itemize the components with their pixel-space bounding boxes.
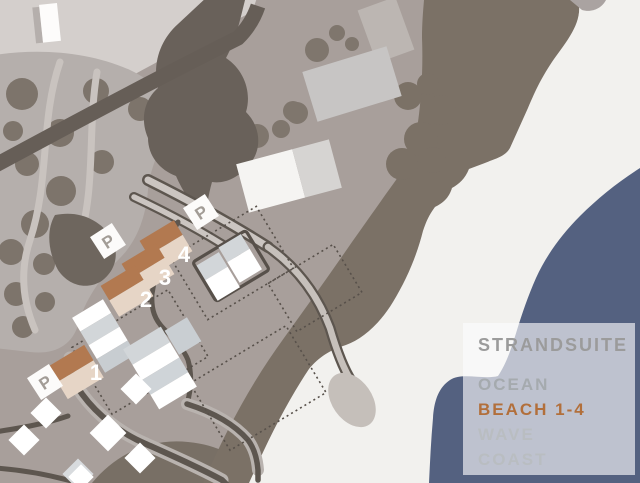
tree-circle bbox=[272, 120, 290, 138]
tree-circle bbox=[46, 176, 76, 206]
legend-item-wave: WAVE bbox=[478, 422, 635, 447]
tree-circle bbox=[417, 73, 439, 95]
tree-circle bbox=[35, 292, 55, 312]
legend-panel: STRANDSUITE OCEAN BEACH 1-4 WAVE COAST bbox=[463, 323, 635, 475]
top-left-building bbox=[32, 3, 61, 43]
tree-circle bbox=[305, 38, 329, 62]
unit-number-2: 2 bbox=[140, 287, 152, 312]
tree-circle bbox=[386, 148, 418, 180]
legend-title: STRANDSUITE bbox=[478, 335, 635, 356]
unit-number-1: 1 bbox=[90, 360, 102, 385]
tree-circle bbox=[33, 253, 55, 275]
legend-item-ocean: OCEAN bbox=[478, 372, 635, 397]
tree-circle bbox=[3, 121, 23, 141]
legend-item-beach: BEACH 1-4 bbox=[478, 397, 635, 422]
unit-number-4: 4 bbox=[178, 242, 191, 267]
tree-circle bbox=[420, 147, 446, 173]
tree-circle bbox=[283, 101, 303, 121]
unit-number-3: 3 bbox=[159, 265, 171, 290]
tree-circle bbox=[6, 78, 38, 110]
tree-circle bbox=[426, 95, 456, 125]
legend-item-coast: COAST bbox=[478, 447, 635, 472]
tree-circle bbox=[345, 37, 359, 51]
site-map: P P P 4 3 2 1 STRANDSUITE OCEAN BEACH 1-… bbox=[0, 0, 640, 483]
tree-circle bbox=[329, 25, 345, 41]
